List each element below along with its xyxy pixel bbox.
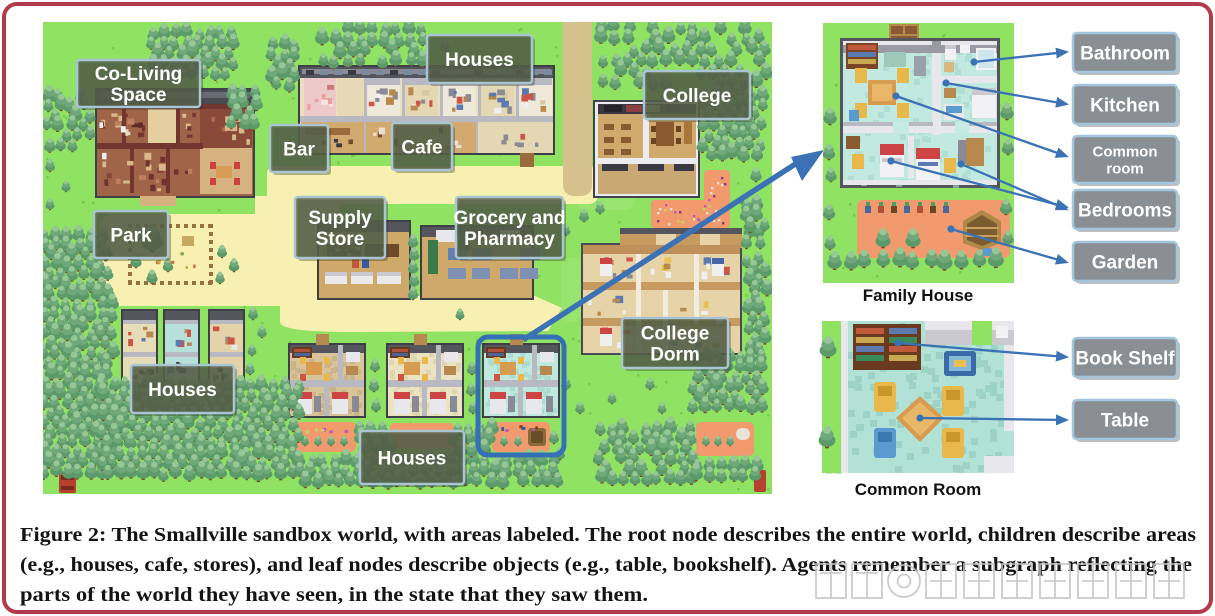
svg-text:Bar: Bar (283, 139, 315, 160)
svg-text:Houses: Houses (378, 448, 447, 469)
svg-text:Cafe: Cafe (401, 137, 442, 158)
svg-text:Supply: Supply (308, 208, 372, 229)
svg-text:room: room (1106, 160, 1144, 177)
svg-text:College: College (663, 86, 732, 107)
svg-text:Co-Living: Co-Living (95, 64, 183, 85)
svg-text:Common Room: Common Room (855, 480, 982, 499)
svg-text:Pharmacy: Pharmacy (464, 229, 555, 250)
svg-text:Dorm: Dorm (650, 344, 700, 365)
svg-text:Store: Store (316, 229, 365, 250)
svg-text:Garden: Garden (1092, 252, 1159, 273)
svg-text:College: College (641, 323, 710, 344)
svg-text:Houses: Houses (445, 50, 514, 71)
svg-text:Bathroom: Bathroom (1080, 43, 1170, 64)
svg-text:Kitchen: Kitchen (1090, 95, 1160, 116)
svg-text:Book Shelf: Book Shelf (1075, 348, 1175, 369)
svg-text:Park: Park (110, 225, 152, 246)
svg-text:Common: Common (1093, 143, 1158, 160)
svg-text:parts of the world they have s: parts of the world they have seen, in th… (20, 584, 648, 606)
svg-text:Table: Table (1101, 410, 1149, 431)
svg-text:Family House: Family House (863, 286, 974, 305)
svg-text:Houses: Houses (148, 380, 217, 401)
svg-text:Grocery and: Grocery and (454, 208, 566, 229)
svg-text:Bedrooms: Bedrooms (1078, 200, 1172, 221)
svg-text:Space: Space (111, 85, 167, 106)
svg-text:Figure 2: The Smallville sandb: Figure 2: The Smallville sandbox world, … (20, 524, 1196, 546)
